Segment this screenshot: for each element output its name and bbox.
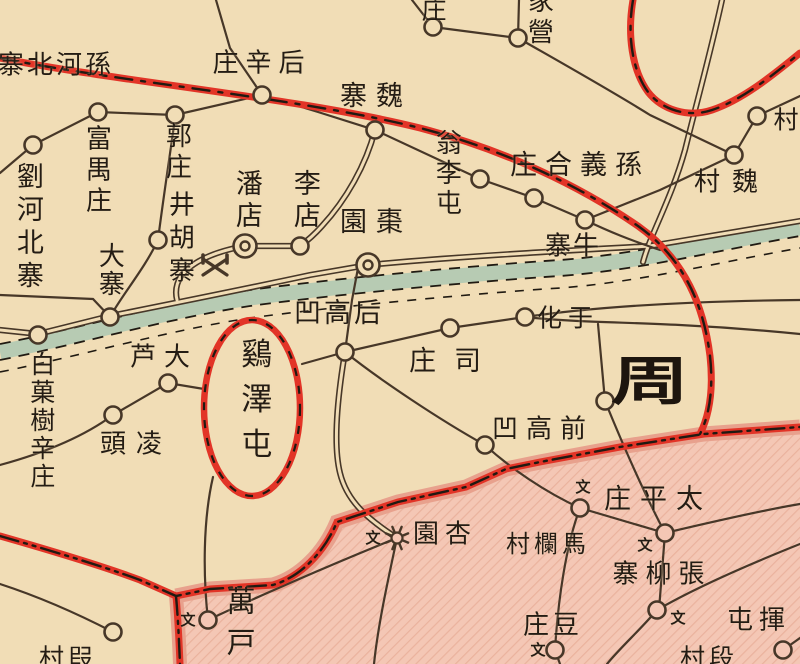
walled-town-oval (204, 320, 300, 496)
qian-gao-ao-marker (477, 437, 494, 454)
jing-hu-zhai-marker (150, 232, 167, 249)
settlement-4-marker (425, 19, 442, 36)
region-title-zhou: 周 (611, 340, 689, 415)
ling-tou-marker (105, 407, 122, 424)
hou-gao-ao-marker (337, 344, 354, 361)
li-dian-marker (292, 238, 309, 255)
jia-ying-marker (510, 30, 527, 47)
map-canvas (0, 0, 800, 664)
settlement-8-marker (572, 500, 589, 517)
pan-dian-marker (234, 235, 257, 258)
wei-zhai-marker (367, 122, 384, 139)
settlement-7-marker (105, 624, 122, 641)
hou-xin-zhuang-marker (254, 87, 271, 104)
dou-zhuang-marker (547, 642, 564, 659)
yu-hua-marker (517, 309, 534, 326)
settlement-5-marker (526, 190, 543, 207)
niu-zhai-marker (577, 212, 594, 229)
tai-ping-zhuang-marker (657, 525, 674, 542)
da-zhai-marker (102, 309, 119, 326)
si-zhuang-marker (442, 320, 459, 337)
settlement-9-marker (775, 642, 792, 659)
cun-top-right-marker (749, 108, 766, 125)
settlement-3-marker (167, 107, 184, 124)
settlement-2-marker (90, 104, 107, 121)
da-lu-marker (160, 375, 177, 392)
zao-yuan-marker (357, 254, 380, 277)
historical-map: 寨北河孫庄辛后寨魏庄家營劉河北寨富禺庄郭庄井胡寨大寨潘店李店園棗翁李屯庄合義孫寨… (0, 0, 800, 664)
bai-guo-shu-marker (30, 327, 47, 344)
wei-cun-marker (726, 147, 743, 164)
weng-li-tun-marker (472, 171, 489, 188)
zhang-liu-zhai-marker (649, 602, 666, 619)
wan-hu-marker (200, 612, 217, 629)
pink-district-region (176, 427, 800, 664)
settlement-1-marker (25, 137, 42, 154)
